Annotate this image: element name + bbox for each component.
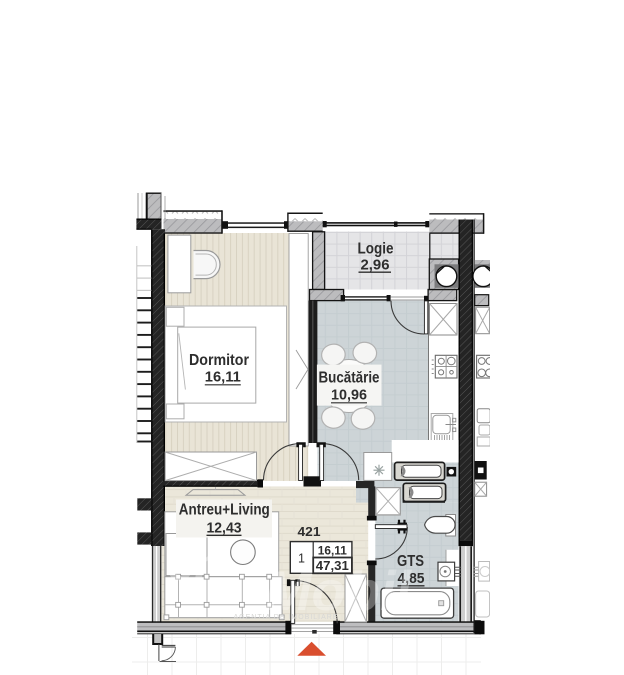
svg-text:Antreu+Living: Antreu+Living bbox=[179, 502, 270, 519]
svg-text:16,11: 16,11 bbox=[205, 369, 241, 386]
svg-text:Logie: Logie bbox=[358, 241, 394, 258]
svg-text:Bucătărie: Bucătărie bbox=[319, 370, 380, 387]
svg-text:16,11: 16,11 bbox=[318, 544, 347, 558]
svg-text:Dormitor: Dormitor bbox=[189, 352, 249, 369]
svg-text:er: er bbox=[167, 538, 215, 591]
svg-text:10,96: 10,96 bbox=[331, 387, 367, 404]
svg-text:12,43: 12,43 bbox=[207, 520, 242, 537]
svg-text:Mobil: Mobil bbox=[265, 559, 413, 622]
svg-text:421: 421 bbox=[298, 524, 321, 539]
svg-text:2,96: 2,96 bbox=[361, 257, 390, 274]
svg-text:AGENTIA DE IMOBILIARE: AGENTIA DE IMOBILIARE bbox=[233, 614, 338, 621]
